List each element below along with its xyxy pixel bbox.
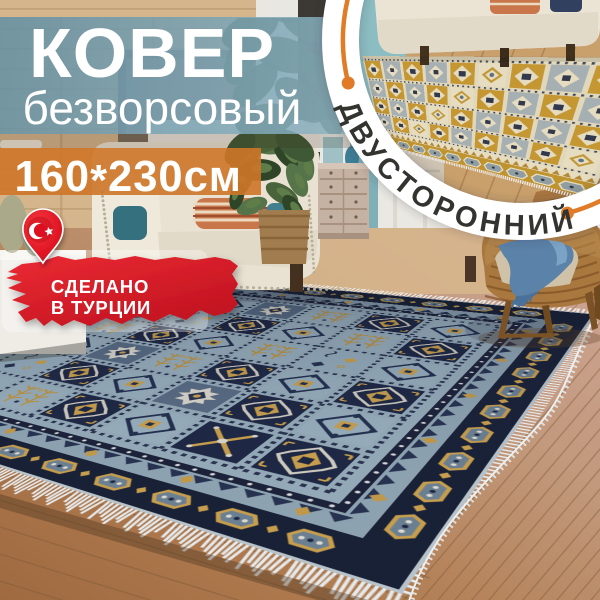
svg-text:ДВУСТОРОННИЙ: ДВУСТОРОННИЙ — [332, 96, 581, 242]
